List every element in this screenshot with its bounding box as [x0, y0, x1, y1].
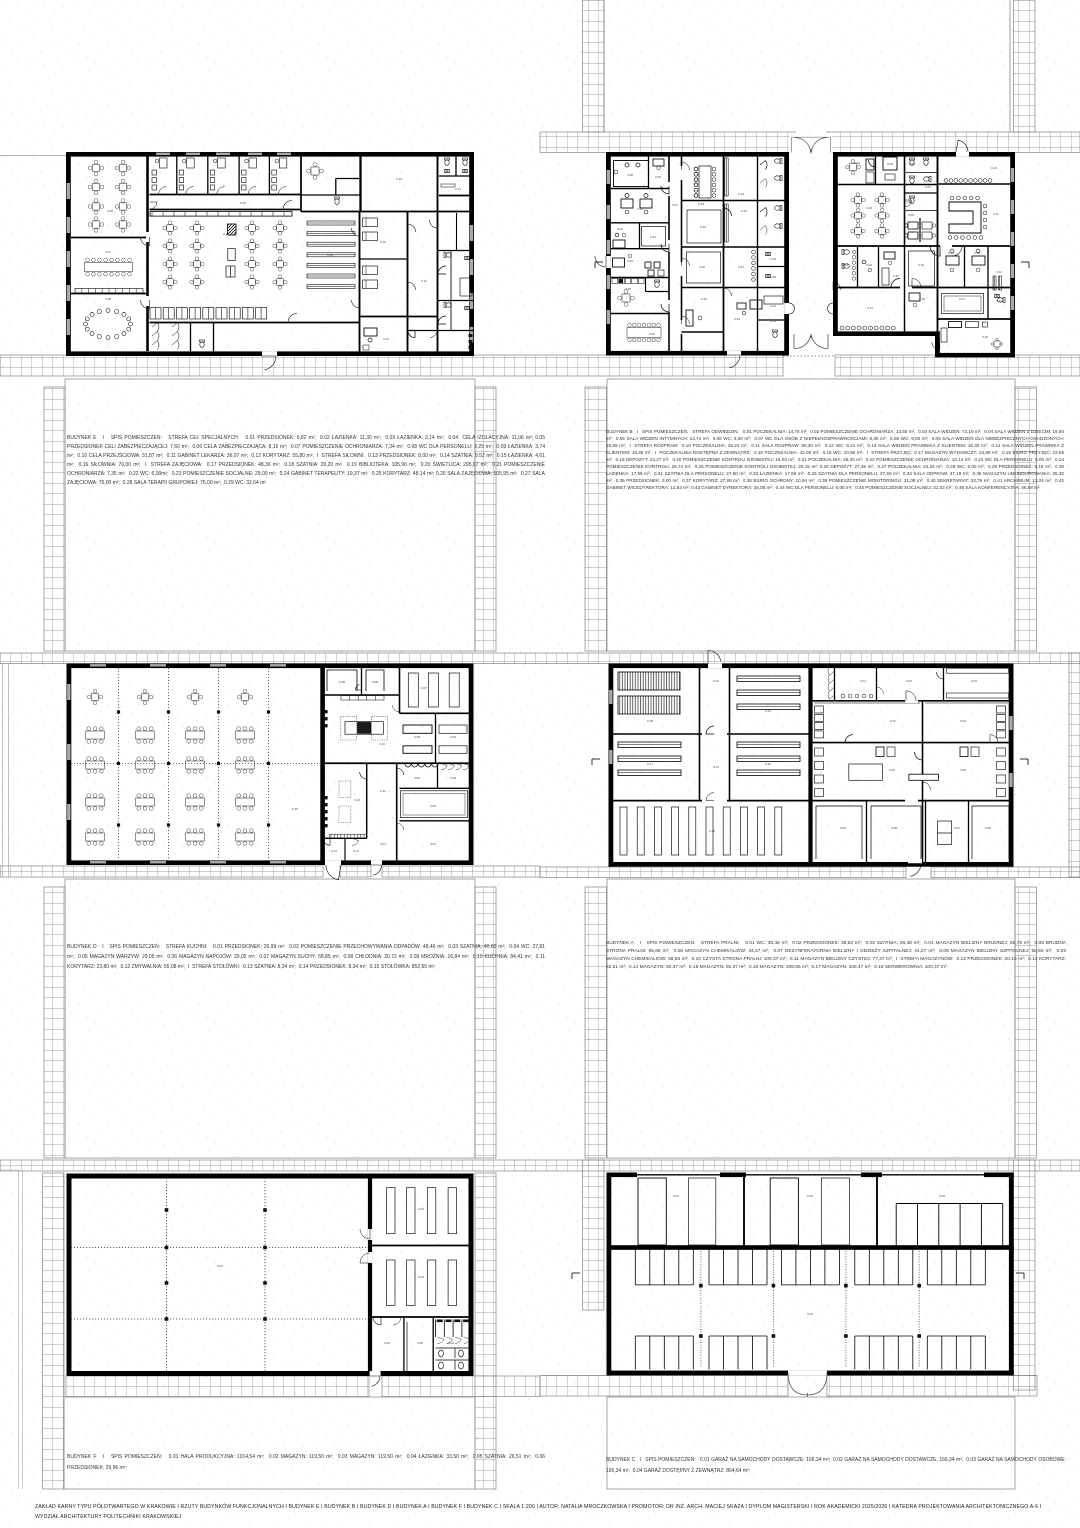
svg-text:0.12: 0.12 — [421, 279, 427, 283]
svg-text:0.15: 0.15 — [982, 335, 988, 339]
svg-text:0.22: 0.22 — [770, 304, 776, 308]
svg-text:0.41: 0.41 — [650, 235, 656, 239]
svg-text:0.10: 0.10 — [889, 768, 895, 772]
svg-text:0.19: 0.19 — [918, 263, 924, 267]
svg-text:0.09: 0.09 — [450, 776, 456, 780]
svg-text:0.29: 0.29 — [770, 257, 776, 261]
svg-text:0.14: 0.14 — [331, 849, 337, 853]
svg-text:0.14: 0.14 — [765, 709, 771, 713]
svg-text:0.15: 0.15 — [292, 807, 298, 811]
svg-text:0.45: 0.45 — [625, 287, 631, 291]
svg-text:0.31: 0.31 — [741, 209, 747, 213]
svg-text:0.05: 0.05 — [414, 735, 420, 739]
svg-text:0.23: 0.23 — [770, 319, 776, 323]
svg-text:0.28: 0.28 — [770, 275, 776, 279]
svg-text:0.01: 0.01 — [380, 842, 386, 846]
svg-text:0.01: 0.01 — [217, 1264, 223, 1268]
svg-text:0.04: 0.04 — [414, 776, 420, 780]
svg-text:0.38: 0.38 — [627, 173, 633, 177]
svg-text:0.43: 0.43 — [627, 259, 633, 263]
svg-text:0.04: 0.04 — [854, 161, 860, 165]
svg-text:0.09: 0.09 — [908, 213, 914, 217]
svg-text:0.25: 0.25 — [701, 297, 707, 301]
svg-text:0.01: 0.01 — [842, 263, 848, 267]
svg-text:0.13: 0.13 — [713, 765, 719, 769]
svg-text:0.06: 0.06 — [384, 1341, 390, 1345]
svg-text:0.36: 0.36 — [655, 175, 661, 179]
svg-text:0.37: 0.37 — [672, 203, 678, 207]
svg-text:0.18: 0.18 — [919, 297, 925, 301]
svg-text:0.03: 0.03 — [430, 804, 436, 808]
svg-text:0.04: 0.04 — [807, 1312, 813, 1316]
svg-text:0.24: 0.24 — [734, 317, 740, 321]
svg-text:0.05: 0.05 — [887, 162, 893, 166]
svg-text:0.35: 0.35 — [700, 225, 706, 229]
svg-text:0.12: 0.12 — [713, 679, 719, 683]
svg-text:0.07: 0.07 — [925, 185, 931, 189]
svg-text:0.03: 0.03 — [866, 206, 872, 210]
svg-text:0.26: 0.26 — [107, 209, 113, 213]
svg-text:0.27: 0.27 — [105, 250, 111, 254]
svg-text:0.05: 0.05 — [417, 1341, 423, 1345]
svg-text:0.28: 0.28 — [105, 297, 111, 301]
svg-text:0.04: 0.04 — [448, 1341, 454, 1345]
svg-text:0.01: 0.01 — [860, 679, 866, 683]
svg-text:0.10: 0.10 — [991, 166, 997, 170]
svg-text:0.02: 0.02 — [430, 842, 436, 846]
svg-text:0.42: 0.42 — [617, 227, 623, 231]
svg-text:0.46: 0.46 — [649, 332, 655, 336]
svg-text:0.10: 0.10 — [380, 240, 386, 244]
svg-text:0.02: 0.02 — [866, 263, 872, 267]
svg-text:0.19: 0.19 — [327, 253, 333, 257]
svg-text:0.33: 0.33 — [738, 192, 744, 196]
svg-text:0.26: 0.26 — [699, 265, 705, 269]
svg-text:0.11: 0.11 — [380, 789, 386, 793]
svg-text:0.20: 0.20 — [893, 274, 899, 278]
svg-text:0.08: 0.08 — [372, 680, 378, 684]
svg-text:0.02: 0.02 — [906, 679, 912, 683]
svg-text:0.40: 0.40 — [637, 207, 643, 211]
svg-text:0.02: 0.02 — [807, 1194, 813, 1198]
svg-text:0.07: 0.07 — [954, 826, 960, 830]
svg-text:0.17: 0.17 — [647, 762, 653, 766]
svg-text:0.18: 0.18 — [647, 719, 653, 723]
svg-text:0.34: 0.34 — [698, 202, 704, 206]
svg-text:0.08: 0.08 — [339, 680, 345, 684]
svg-text:0.03: 0.03 — [971, 679, 977, 683]
svg-text:0.03: 0.03 — [939, 1194, 945, 1198]
svg-text:0.08: 0.08 — [906, 200, 912, 204]
svg-text:0.16: 0.16 — [709, 829, 715, 833]
svg-text:0.04: 0.04 — [960, 719, 966, 723]
svg-text:0.06: 0.06 — [909, 162, 915, 166]
svg-text:0.13: 0.13 — [974, 251, 980, 255]
svg-text:0.20: 0.20 — [223, 232, 229, 236]
svg-text:0.12: 0.12 — [354, 798, 360, 802]
svg-text:0.14: 0.14 — [455, 187, 461, 191]
svg-text:0.11: 0.11 — [890, 719, 896, 723]
svg-text:0.11: 0.11 — [993, 212, 999, 216]
svg-text:0.09: 0.09 — [840, 826, 846, 830]
svg-text:0.10: 0.10 — [379, 742, 385, 746]
svg-text:0.06: 0.06 — [450, 735, 456, 739]
svg-text:0.14: 0.14 — [948, 251, 954, 255]
svg-text:0.05: 0.05 — [960, 768, 966, 772]
svg-text:0.12: 0.12 — [996, 270, 1002, 274]
svg-text:0.06: 0.06 — [985, 826, 991, 830]
svg-text:0.25: 0.25 — [240, 201, 246, 205]
svg-text:0.16: 0.16 — [996, 299, 1002, 303]
svg-text:0.16: 0.16 — [396, 177, 402, 181]
svg-text:0.21: 0.21 — [867, 306, 873, 310]
svg-text:0.27: 0.27 — [738, 265, 744, 269]
svg-text:0.01: 0.01 — [673, 1194, 679, 1198]
svg-text:0.11: 0.11 — [383, 337, 389, 341]
svg-text:0.02: 0.02 — [418, 1207, 424, 1211]
svg-text:0.13: 0.13 — [353, 849, 359, 853]
svg-text:0.15: 0.15 — [765, 762, 771, 766]
svg-text:0.03: 0.03 — [418, 1275, 424, 1279]
svg-text:0.17: 0.17 — [959, 297, 965, 301]
svg-text:0.07: 0.07 — [421, 686, 427, 690]
svg-text:0.08: 0.08 — [891, 826, 897, 830]
